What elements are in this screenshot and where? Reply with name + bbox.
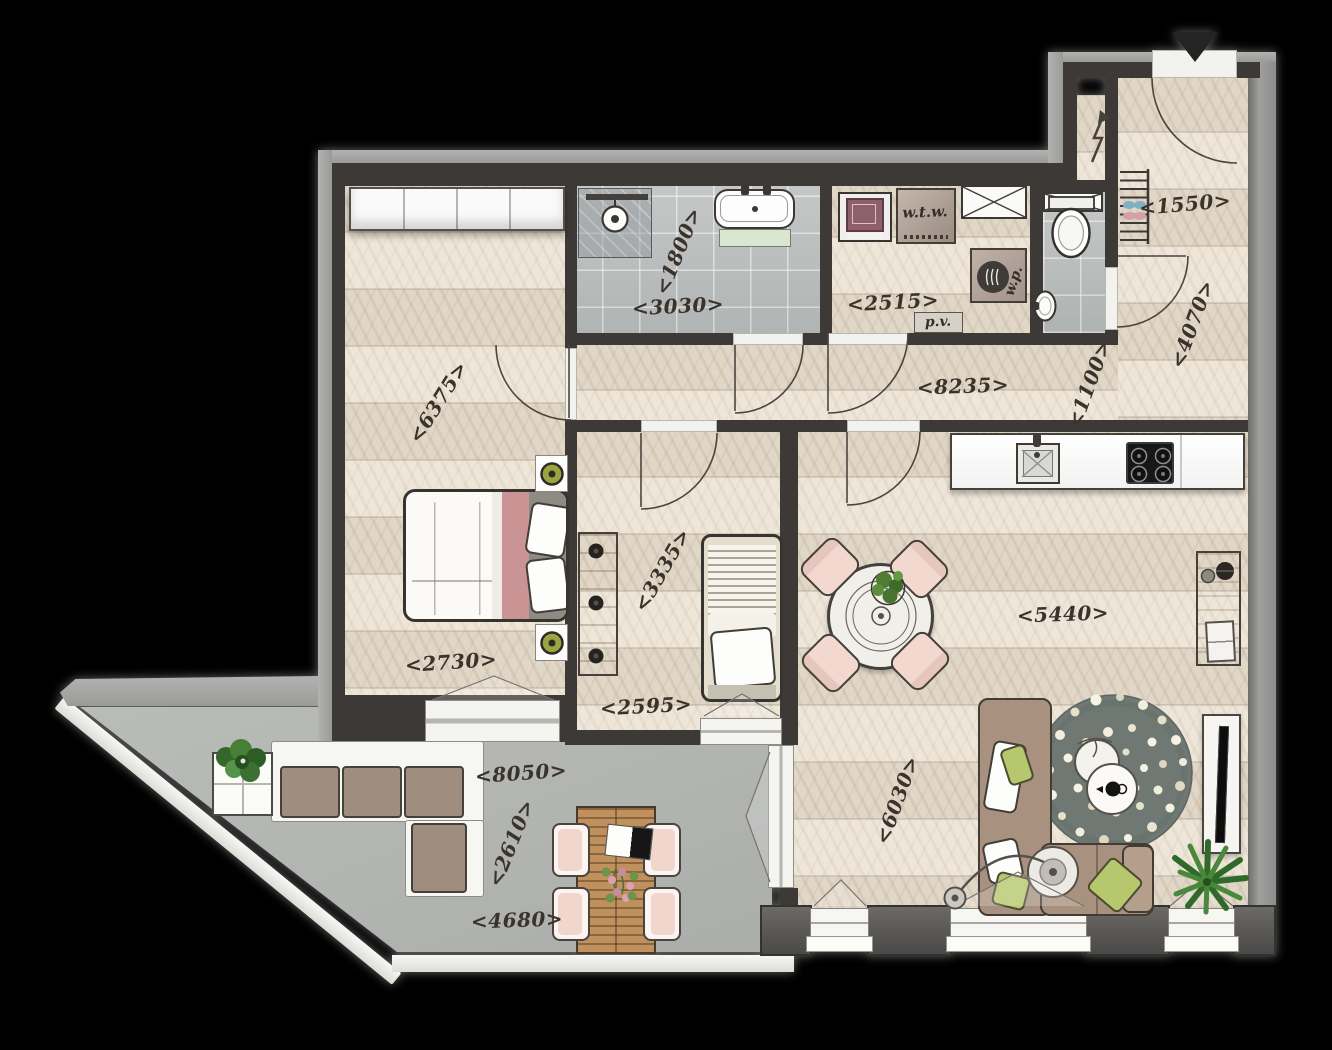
dimension-label-6030: <6030> (870, 753, 924, 848)
dimension-label-1800: <1800> (650, 204, 707, 298)
dimension-label-2730: <2730> (404, 647, 498, 677)
dimension-label-1100: <1100> (1062, 337, 1116, 432)
floor-plan-canvas: <6375><1800><3030><2515><1550><4070><110… (0, 0, 1332, 1050)
equipment-label-pv: p.v. (925, 314, 952, 331)
floor-plan: <6375><1800><3030><2515><1550><4070><110… (0, 0, 1332, 1050)
dimension-label-3335: <3335> (629, 524, 696, 616)
dimension-label-5440: <5440> (1017, 600, 1110, 627)
dimension-label-3030: <3030> (631, 292, 724, 321)
dimension-label-6375: <6375> (403, 357, 472, 448)
dimension-label-2610: <2610> (483, 796, 540, 890)
dimension-label-8050: <8050> (474, 758, 568, 788)
dimension-label-4680: <4680> (471, 906, 564, 933)
equipment-label-wtw: w.t.w. (902, 202, 948, 222)
dimension-label-8235: <8235> (917, 372, 1010, 399)
dimension-label-2595: <2595> (599, 692, 692, 721)
equipment-label-wp: w.p. (1002, 264, 1027, 298)
dimension-label-1550: <1550> (1138, 188, 1232, 220)
dimension-label-2515: <2515> (846, 288, 939, 317)
dimension-label-4070: <4070> (1165, 277, 1219, 372)
labels-layer: <6375><1800><3030><2515><1550><4070><110… (0, 0, 1332, 1050)
